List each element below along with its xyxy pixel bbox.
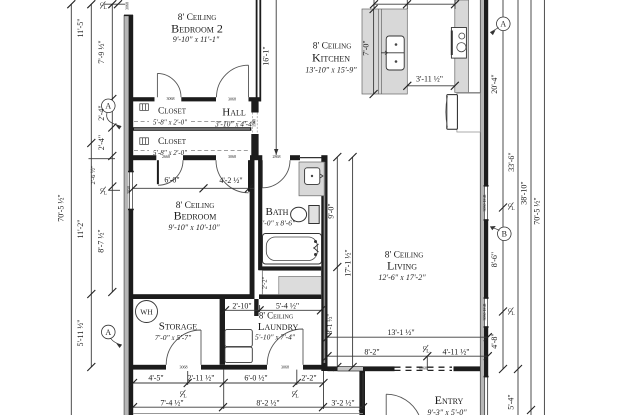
svg-text:2'-11 ½": 2'-11 ½" — [187, 374, 214, 383]
svg-text:3050 EGR: 3050 EGR — [482, 303, 487, 320]
svg-text:WH: WH — [140, 307, 153, 316]
svg-text:3068: 3068 — [228, 96, 236, 101]
svg-text:2'-2": 2'-2" — [301, 374, 316, 383]
svg-text:7'-4 ½": 7'-4 ½" — [160, 399, 183, 408]
svg-text:Storage: Storage — [159, 321, 198, 333]
svg-text:8'-2 ½": 8'-2 ½" — [256, 399, 279, 408]
svg-text:1968: 1968 — [251, 119, 256, 127]
svg-text:3050 EGR: 3050 EGR — [482, 194, 487, 211]
svg-text:20'-4": 20'-4" — [490, 74, 499, 93]
svg-text:9'-10" x 11'-1": 9'-10" x 11'-1" — [173, 35, 220, 44]
svg-text:8'-7 ½": 8'-7 ½" — [97, 229, 106, 252]
svg-text:13'-1 ½": 13'-1 ½" — [387, 328, 414, 337]
svg-text:3068: 3068 — [228, 154, 236, 159]
svg-text:Kitchen: Kitchen — [312, 51, 350, 65]
svg-text:12'-6" x 17'-2": 12'-6" x 17'-2" — [378, 273, 426, 282]
svg-text:3050: 3050 — [126, 186, 131, 194]
svg-text:8'-1 ½": 8'-1 ½" — [326, 314, 334, 335]
svg-text:5'-10" x 7'-4": 5'-10" x 7'-4" — [255, 333, 296, 342]
svg-text:A: A — [105, 102, 111, 111]
svg-text:2'-2": 2'-2" — [262, 276, 269, 289]
svg-text:7'-0" x 5'-7": 7'-0" x 5'-7" — [155, 333, 192, 342]
svg-text:5'-4": 5'-4" — [507, 394, 516, 409]
svg-text:8'-6": 8'-6" — [490, 252, 499, 267]
svg-text:6'-0 ½": 6'-0 ½" — [244, 374, 267, 383]
svg-text:2668: 2668 — [162, 154, 170, 159]
svg-text:B: B — [502, 230, 507, 239]
svg-text:4'-8": 4'-8" — [490, 333, 499, 348]
svg-text:5'-0" x 8'-6": 5'-0" x 8'-6" — [259, 219, 296, 228]
svg-text:8'-2": 8'-2" — [364, 348, 379, 357]
svg-text:Bath: Bath — [266, 206, 289, 218]
svg-text:38'-10": 38'-10" — [520, 181, 529, 204]
svg-text:A: A — [500, 20, 506, 29]
svg-text:Hall: Hall — [222, 107, 246, 119]
svg-text:A: A — [105, 328, 111, 337]
svg-text:4'-11 ½": 4'-11 ½" — [442, 348, 469, 357]
svg-text:2'-6 ½": 2'-6 ½" — [90, 165, 97, 184]
svg-text:Laundry: Laundry — [258, 321, 299, 333]
svg-text:Closet: Closet — [158, 107, 187, 117]
svg-text:5'-8" x 2'-0": 5'-8" x 2'-0" — [153, 149, 187, 157]
svg-text:9'-10" x 10'-10": 9'-10" x 10'-10" — [168, 223, 220, 232]
svg-text:11'-5": 11'-5" — [76, 18, 85, 37]
svg-text:7'-9 ½": 7'-9 ½" — [97, 40, 106, 63]
svg-text:Bedroom 2: Bedroom 2 — [171, 22, 223, 36]
svg-text:3'-10" x 4'-4": 3'-10" x 4'-4" — [214, 120, 256, 129]
svg-text:2'-4": 2'-4" — [97, 105, 106, 120]
svg-text:8' Ceiling: 8' Ceiling — [259, 311, 294, 321]
svg-text:9'-0": 9'-0" — [327, 203, 336, 218]
svg-text:5'-8" x 2'-0": 5'-8" x 2'-0" — [153, 119, 187, 127]
svg-text:6068: 6068 — [419, 365, 427, 370]
svg-text:70'-5 ½": 70'-5 ½" — [57, 194, 66, 221]
svg-text:3068: 3068 — [167, 96, 175, 101]
svg-text:2868: 2868 — [273, 154, 281, 159]
svg-text:Bedroom: Bedroom — [174, 209, 217, 223]
svg-text:9'-3" x 5'-0": 9'-3" x 5'-0" — [427, 408, 467, 415]
svg-text:3'-2 ½": 3'-2 ½" — [331, 399, 354, 408]
svg-text:Closet: Closet — [158, 137, 187, 147]
svg-text:4'-2 ½": 4'-2 ½" — [219, 176, 242, 185]
svg-text:3068: 3068 — [125, 2, 130, 10]
svg-text:5'-11 ½": 5'-11 ½" — [76, 319, 85, 346]
svg-text:17'-1 ½": 17'-1 ½" — [344, 249, 353, 276]
svg-text:3068: 3068 — [281, 364, 289, 369]
svg-text:6'-0": 6'-0" — [164, 176, 179, 185]
svg-text:Living: Living — [387, 259, 417, 273]
svg-text:4'-5": 4'-5" — [148, 374, 163, 383]
svg-text:3'-11 ½": 3'-11 ½" — [416, 75, 443, 84]
svg-text:16'-1": 16'-1" — [262, 46, 271, 65]
svg-text:33'-6": 33'-6" — [507, 152, 516, 171]
svg-text:2'-4": 2'-4" — [97, 135, 106, 150]
svg-text:3068: 3068 — [180, 364, 188, 369]
svg-text:7'-0": 7'-0" — [362, 40, 371, 55]
svg-text:11'-2": 11'-2" — [76, 219, 85, 238]
svg-text:70'-5 ½": 70'-5 ½" — [533, 197, 542, 224]
svg-text:Entry: Entry — [435, 393, 464, 407]
svg-text:5'-4 ½": 5'-4 ½" — [276, 302, 299, 311]
svg-text:2'-10": 2'-10" — [232, 302, 251, 311]
svg-text:13'-10" x 15'-9": 13'-10" x 15'-9" — [305, 66, 357, 75]
